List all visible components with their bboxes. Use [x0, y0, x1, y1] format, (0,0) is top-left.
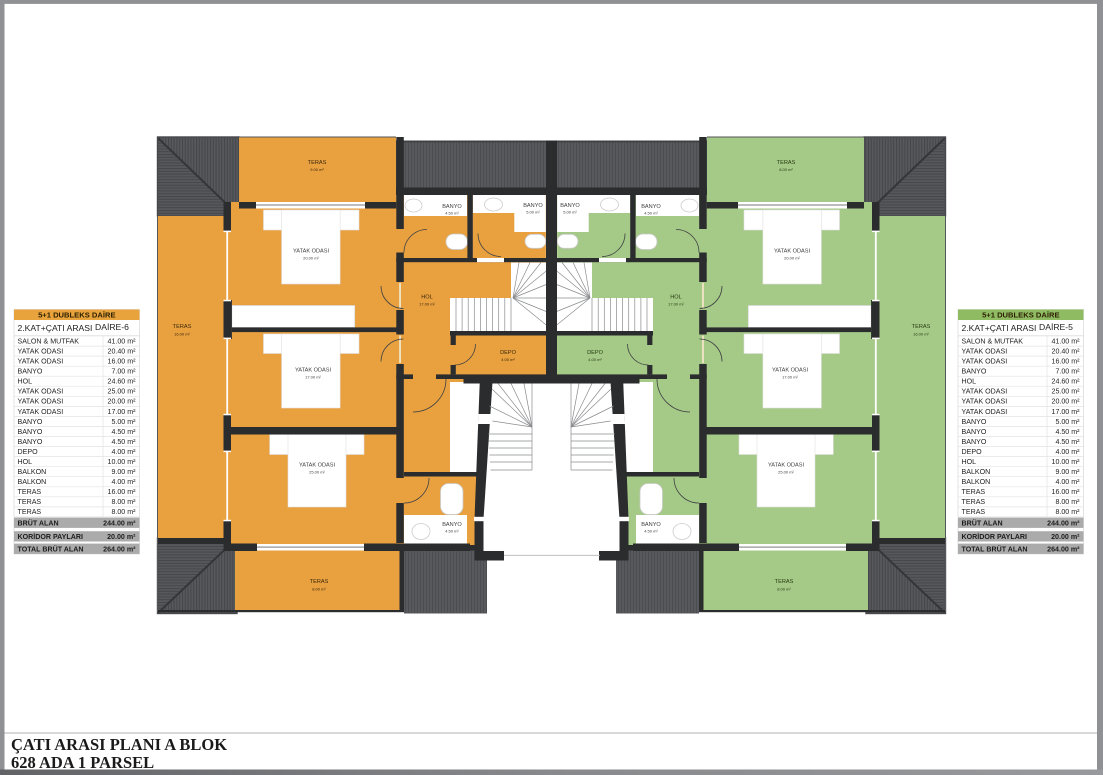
- svg-text:HOL: HOL: [18, 378, 33, 386]
- svg-text:BANYO: BANYO: [18, 368, 43, 376]
- svg-text:2.KAT+ÇATI ARASI: 2.KAT+ÇATI ARASI: [18, 323, 93, 333]
- svg-text:DEPO: DEPO: [500, 350, 517, 356]
- svg-text:17.00 m²: 17.00 m²: [305, 375, 321, 380]
- svg-text:HOL: HOL: [962, 458, 977, 466]
- svg-text:YATAK ODASI: YATAK ODASI: [962, 358, 1008, 366]
- svg-text:41.00 m²: 41.00 m²: [1052, 337, 1081, 345]
- svg-text:8.00 m²: 8.00 m²: [1055, 498, 1080, 506]
- svg-text:BANYO: BANYO: [641, 522, 661, 528]
- svg-text:17.00 m²: 17.00 m²: [782, 375, 798, 380]
- svg-text:SALON & MUTFAK: SALON & MUTFAK: [962, 337, 1024, 345]
- svg-text:TOTAL BRÜT ALAN: TOTAL BRÜT ALAN: [962, 544, 1028, 553]
- svg-text:TERAS: TERAS: [18, 498, 42, 506]
- svg-text:HOL: HOL: [670, 295, 682, 301]
- svg-text:244.00 m²: 244.00 m²: [103, 519, 136, 527]
- svg-text:YATAK ODASI: YATAK ODASI: [18, 388, 64, 396]
- svg-text:2.KAT+ÇATI ARASI: 2.KAT+ÇATI ARASI: [962, 323, 1037, 333]
- svg-text:BANYO: BANYO: [18, 438, 43, 446]
- svg-text:KORİDOR PAYLARI: KORİDOR PAYLARI: [18, 532, 83, 541]
- svg-text:TERAS: TERAS: [18, 508, 42, 516]
- svg-text:244.00 m²: 244.00 m²: [1047, 519, 1080, 527]
- svg-text:20.00 m²: 20.00 m²: [107, 533, 136, 541]
- svg-text:4.50 m²: 4.50 m²: [644, 211, 658, 216]
- svg-text:ÇATI ARASI PLANI A BLOK: ÇATI ARASI PLANI A BLOK: [11, 735, 227, 754]
- svg-text:17.00 m²: 17.00 m²: [668, 302, 684, 307]
- svg-text:BANYO: BANYO: [641, 204, 661, 210]
- svg-text:BANYO: BANYO: [962, 438, 987, 446]
- svg-text:4.00 m²: 4.00 m²: [1055, 478, 1080, 486]
- svg-text:8.00 m²: 8.00 m²: [779, 167, 793, 172]
- svg-text:TERAS: TERAS: [18, 488, 42, 496]
- svg-text:TERAS: TERAS: [308, 160, 327, 166]
- svg-text:TERAS: TERAS: [962, 488, 986, 496]
- svg-text:20.40 m²: 20.40 m²: [108, 347, 137, 355]
- svg-text:YATAK ODASI: YATAK ODASI: [293, 249, 330, 255]
- svg-text:8.00 m²: 8.00 m²: [111, 508, 136, 516]
- svg-text:YATAK ODASI: YATAK ODASI: [962, 388, 1008, 396]
- svg-text:10.00 m²: 10.00 m²: [1052, 458, 1081, 466]
- svg-text:7.00 m²: 7.00 m²: [1055, 368, 1080, 376]
- svg-text:4.00 m²: 4.00 m²: [1055, 448, 1080, 456]
- svg-text:20.00 m²: 20.00 m²: [784, 256, 800, 261]
- svg-text:BRÜT ALAN: BRÜT ALAN: [18, 518, 59, 527]
- svg-text:YATAK ODASI: YATAK ODASI: [18, 347, 64, 355]
- svg-text:BALKON: BALKON: [18, 468, 47, 476]
- svg-text:5+1 DUBLEKS DAİRE: 5+1 DUBLEKS DAİRE: [982, 311, 1059, 320]
- svg-text:HOL: HOL: [421, 295, 433, 301]
- svg-text:4.50 m²: 4.50 m²: [1055, 428, 1080, 436]
- svg-text:BANYO: BANYO: [18, 418, 43, 426]
- svg-text:YATAK ODASI: YATAK ODASI: [18, 408, 64, 416]
- svg-text:TERAS: TERAS: [777, 160, 796, 166]
- svg-text:7.00 m²: 7.00 m²: [111, 368, 136, 376]
- svg-text:4.00 m²: 4.00 m²: [111, 448, 136, 456]
- svg-text:9.00 m²: 9.00 m²: [310, 167, 324, 172]
- svg-text:17.00 m²: 17.00 m²: [419, 302, 435, 307]
- svg-text:25.00 m²: 25.00 m²: [309, 470, 325, 475]
- svg-text:BRÜT ALAN: BRÜT ALAN: [962, 518, 1003, 527]
- svg-text:4.00 m²: 4.00 m²: [111, 478, 136, 486]
- svg-text:YATAK ODASI: YATAK ODASI: [962, 408, 1008, 416]
- svg-text:8.00 m²: 8.00 m²: [111, 498, 136, 506]
- svg-text:BANYO: BANYO: [18, 428, 43, 436]
- svg-text:YATAK ODASI: YATAK ODASI: [295, 368, 332, 374]
- svg-text:4.00 m²: 4.00 m²: [501, 357, 515, 362]
- svg-text:20.00 m²: 20.00 m²: [303, 256, 319, 261]
- svg-text:5+1 DUBLEKS DAİRE: 5+1 DUBLEKS DAİRE: [38, 311, 115, 320]
- svg-text:25.00 m²: 25.00 m²: [1052, 388, 1081, 396]
- svg-text:TERAS: TERAS: [173, 324, 192, 330]
- svg-text:BANYO: BANYO: [560, 203, 580, 209]
- svg-text:5.00 m²: 5.00 m²: [526, 210, 540, 215]
- svg-text:17.00 m²: 17.00 m²: [108, 408, 137, 416]
- svg-text:YATAK ODASI: YATAK ODASI: [962, 347, 1008, 355]
- svg-text:BANYO: BANYO: [523, 203, 543, 209]
- svg-text:TOTAL BRÜT ALAN: TOTAL BRÜT ALAN: [18, 544, 84, 553]
- svg-text:DAİRE-5: DAİRE-5: [1039, 322, 1073, 332]
- svg-text:DEPO: DEPO: [962, 448, 983, 456]
- svg-text:8.00 m²: 8.00 m²: [1055, 508, 1080, 516]
- svg-text:4.50 m²: 4.50 m²: [644, 529, 658, 534]
- svg-text:628 ADA 1 PARSEL: 628 ADA 1 PARSEL: [11, 753, 154, 772]
- svg-text:YATAK ODASI: YATAK ODASI: [18, 358, 64, 366]
- svg-text:9.00 m²: 9.00 m²: [111, 468, 136, 476]
- svg-text:41.00 m²: 41.00 m²: [108, 337, 137, 345]
- svg-text:DEPO: DEPO: [18, 448, 39, 456]
- svg-text:YATAK ODASI: YATAK ODASI: [772, 368, 809, 374]
- svg-text:16.00 m²: 16.00 m²: [1052, 488, 1081, 496]
- svg-text:4.50 m²: 4.50 m²: [445, 529, 459, 534]
- svg-text:8.00 m²: 8.00 m²: [312, 587, 326, 592]
- svg-text:24.60 m²: 24.60 m²: [1052, 378, 1081, 386]
- svg-text:BALKON: BALKON: [962, 478, 991, 486]
- svg-text:264.00 m²: 264.00 m²: [1047, 545, 1080, 553]
- svg-text:16.00 m²: 16.00 m²: [108, 358, 137, 366]
- svg-text:YATAK ODASI: YATAK ODASI: [962, 398, 1008, 406]
- svg-text:TERAS: TERAS: [912, 324, 931, 330]
- svg-text:BALKON: BALKON: [962, 468, 991, 476]
- svg-text:4.50 m²: 4.50 m²: [1055, 438, 1080, 446]
- svg-text:DAİRE-6: DAİRE-6: [95, 322, 129, 332]
- svg-text:20.00 m²: 20.00 m²: [1051, 533, 1080, 541]
- svg-text:BANYO: BANYO: [442, 522, 462, 528]
- svg-text:BANYO: BANYO: [962, 418, 987, 426]
- svg-text:9.00 m²: 9.00 m²: [1055, 468, 1080, 476]
- svg-text:20.00 m²: 20.00 m²: [1052, 398, 1081, 406]
- svg-text:TERAS: TERAS: [775, 579, 794, 585]
- svg-text:4.50 m²: 4.50 m²: [111, 438, 136, 446]
- svg-text:16.00 m²: 16.00 m²: [174, 332, 190, 337]
- svg-text:BANYO: BANYO: [442, 204, 462, 210]
- svg-text:16.00 m²: 16.00 m²: [1052, 358, 1081, 366]
- svg-text:BANYO: BANYO: [962, 368, 987, 376]
- svg-text:5.00 m²: 5.00 m²: [111, 418, 136, 426]
- svg-text:YATAK ODASI: YATAK ODASI: [299, 463, 336, 469]
- svg-text:24.60 m²: 24.60 m²: [108, 378, 137, 386]
- svg-text:25.00 m²: 25.00 m²: [778, 470, 794, 475]
- svg-text:20.40 m²: 20.40 m²: [1052, 347, 1081, 355]
- svg-text:16.00 m²: 16.00 m²: [108, 488, 137, 496]
- svg-text:TERAS: TERAS: [310, 579, 329, 585]
- svg-text:YATAK ODASI: YATAK ODASI: [768, 463, 805, 469]
- svg-text:4.50 m²: 4.50 m²: [111, 428, 136, 436]
- svg-text:5.00 m²: 5.00 m²: [1055, 418, 1080, 426]
- svg-text:YATAK ODASI: YATAK ODASI: [774, 249, 811, 255]
- svg-text:BALKON: BALKON: [18, 478, 47, 486]
- svg-text:25.00 m²: 25.00 m²: [108, 388, 137, 396]
- svg-text:4.50 m²: 4.50 m²: [445, 211, 459, 216]
- svg-text:TERAS: TERAS: [962, 508, 986, 516]
- svg-text:4.00 m²: 4.00 m²: [588, 357, 602, 362]
- svg-text:SALON & MUTFAK: SALON & MUTFAK: [18, 337, 80, 345]
- svg-text:HOL: HOL: [18, 458, 33, 466]
- svg-text:YATAK ODASI: YATAK ODASI: [18, 398, 64, 406]
- svg-text:17.00 m²: 17.00 m²: [1052, 408, 1081, 416]
- svg-text:HOL: HOL: [962, 378, 977, 386]
- svg-text:DEPO: DEPO: [587, 350, 604, 356]
- svg-text:16.00 m²: 16.00 m²: [913, 332, 929, 337]
- svg-text:10.00 m²: 10.00 m²: [108, 458, 137, 466]
- svg-text:BANYO: BANYO: [962, 428, 987, 436]
- svg-text:264.00 m²: 264.00 m²: [103, 545, 136, 553]
- svg-text:8.00 m²: 8.00 m²: [777, 587, 791, 592]
- svg-text:TERAS: TERAS: [962, 498, 986, 506]
- svg-text:20.00 m²: 20.00 m²: [108, 398, 137, 406]
- svg-text:5.00 m²: 5.00 m²: [563, 210, 577, 215]
- svg-text:KORİDOR PAYLARI: KORİDOR PAYLARI: [962, 532, 1027, 541]
